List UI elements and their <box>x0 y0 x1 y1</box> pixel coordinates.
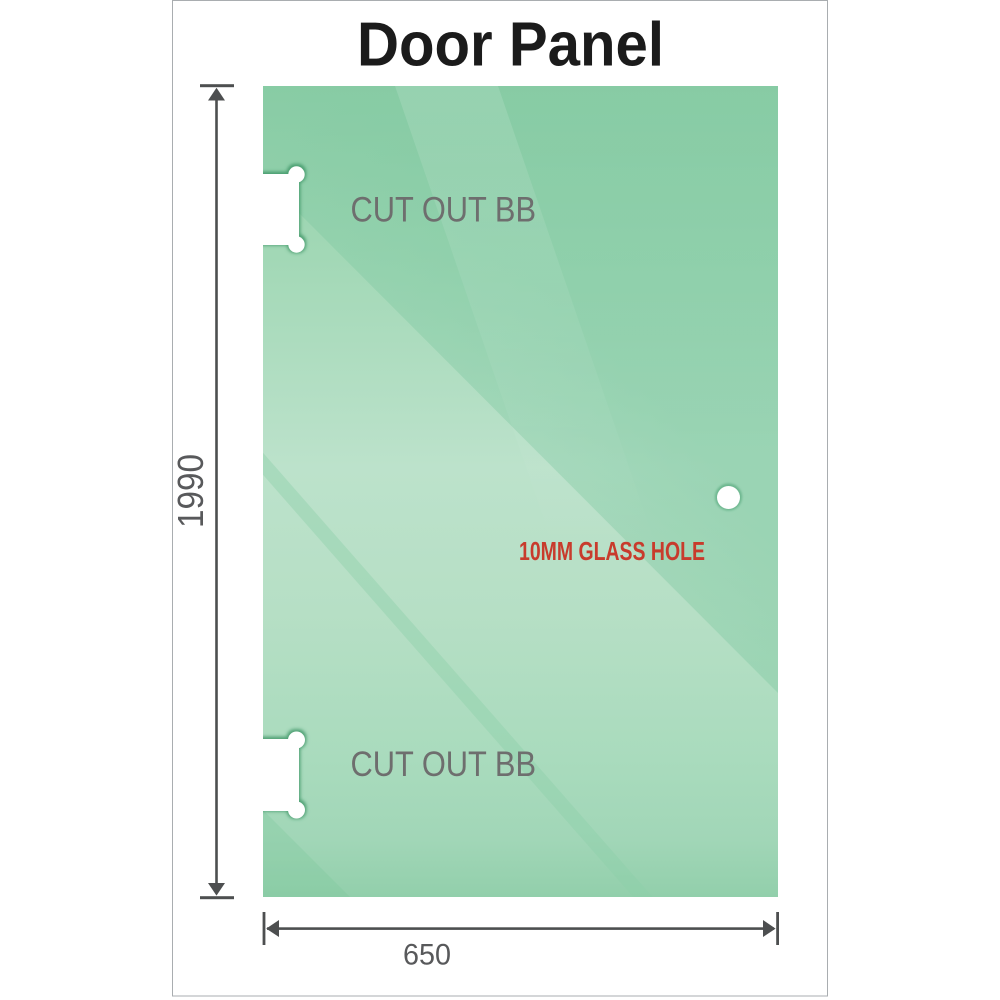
svg-text:CUT OUT BB: CUT OUT BB <box>351 190 537 230</box>
svg-text:1990: 1990 <box>170 454 211 528</box>
svg-text:10MM GLASS HOLE: 10MM GLASS HOLE <box>519 536 705 566</box>
svg-text:650: 650 <box>403 939 451 972</box>
svg-text:CUT OUT BB: CUT OUT BB <box>351 744 537 784</box>
svg-text:Door Panel: Door Panel <box>357 11 664 80</box>
